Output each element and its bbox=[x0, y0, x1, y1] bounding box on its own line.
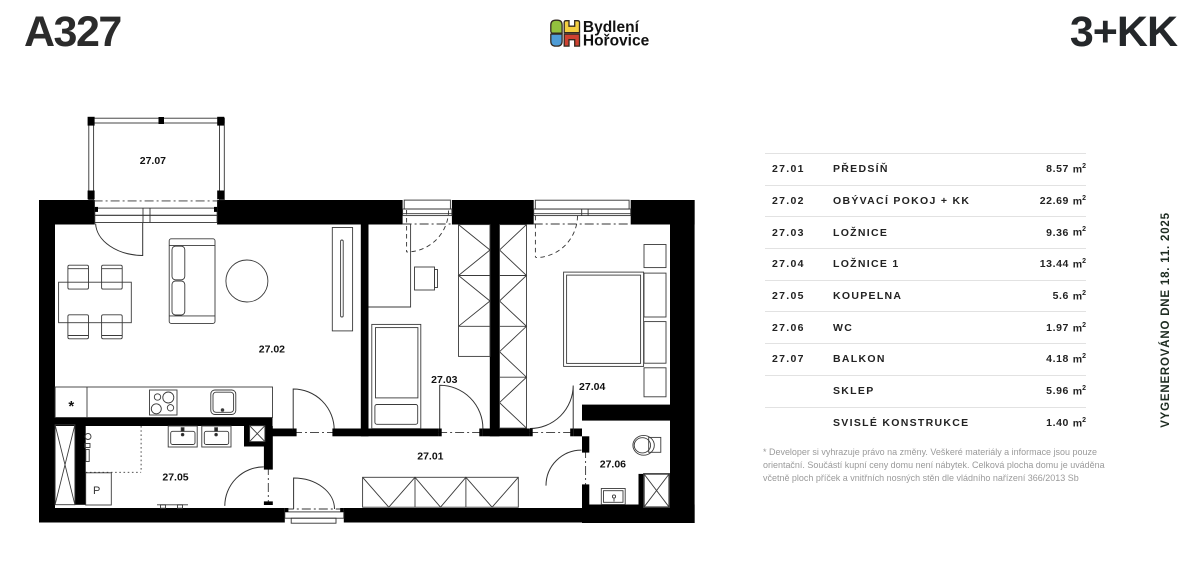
svg-text:27.04: 27.04 bbox=[579, 381, 605, 393]
svg-text:27.06: 27.06 bbox=[600, 459, 626, 471]
svg-text:27.07: 27.07 bbox=[140, 155, 166, 167]
svg-text:27.03: 27.03 bbox=[431, 374, 457, 386]
svg-text:*: * bbox=[68, 398, 74, 415]
svg-text:27.01: 27.01 bbox=[417, 451, 443, 463]
svg-text:P: P bbox=[93, 485, 100, 497]
svg-text:27.02: 27.02 bbox=[259, 344, 285, 356]
svg-text:27.05: 27.05 bbox=[162, 472, 188, 484]
